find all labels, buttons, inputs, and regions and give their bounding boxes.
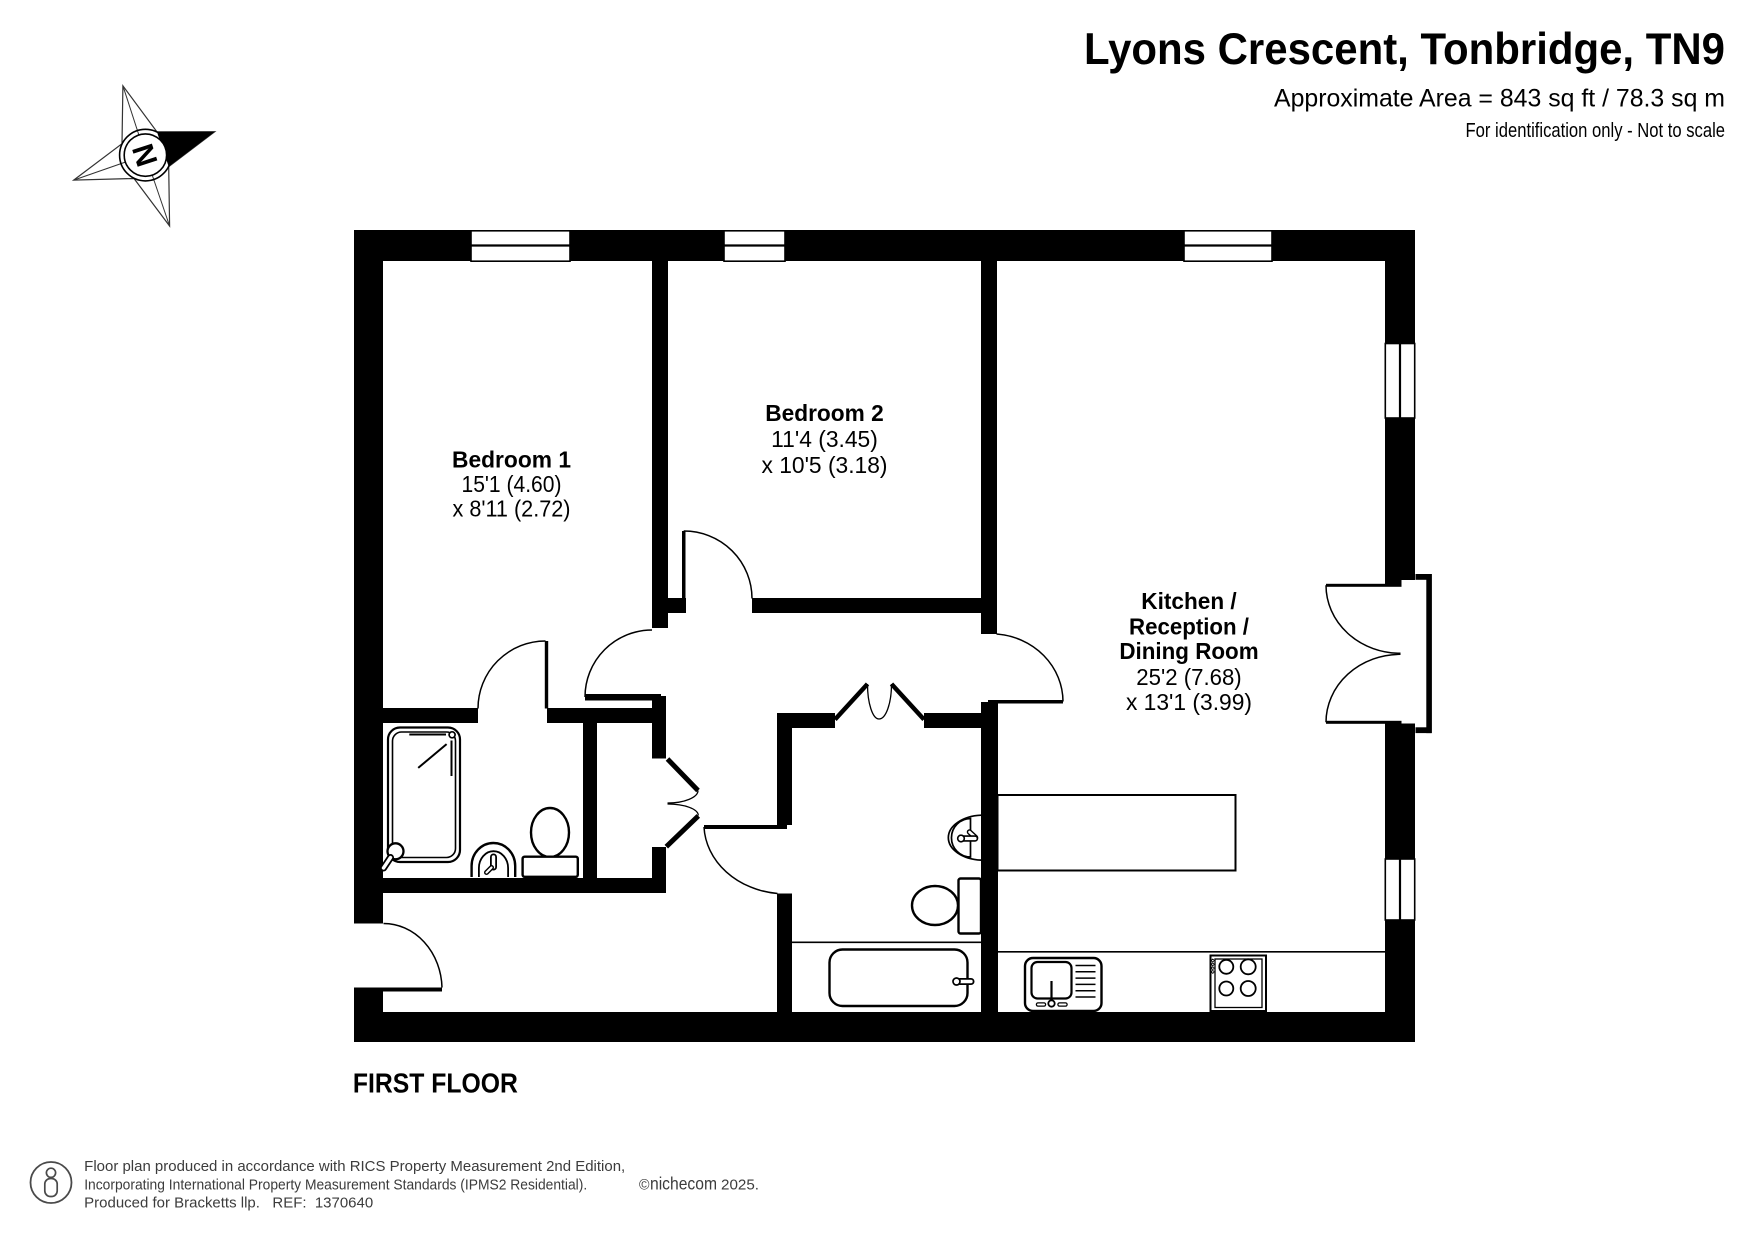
svg-text:Lyons Crescent, Tonbridge, TN9: Lyons Crescent, Tonbridge, TN9	[1084, 25, 1725, 74]
svg-text:11'4 (3.45): 11'4 (3.45)	[771, 426, 878, 452]
svg-text:FIRST FLOOR: FIRST FLOOR	[353, 1068, 518, 1099]
svg-text:Approximate Area = 843 sq ft /: Approximate Area = 843 sq ft / 78.3 sq m	[1274, 86, 1725, 113]
svg-text:x 13'1 (3.99): x 13'1 (3.99)	[1126, 689, 1252, 715]
svg-text:Reception /: Reception /	[1129, 614, 1249, 640]
svg-text:nichecom: nichecom	[650, 1173, 717, 1193]
svg-text:x 8'11 (2.72): x 8'11 (2.72)	[453, 496, 571, 522]
svg-text:x 10'5 (3.18): x 10'5 (3.18)	[762, 452, 888, 478]
svg-text:15'1 (4.60): 15'1 (4.60)	[462, 471, 562, 497]
svg-text:For identification only - Not: For identification only - Not to scale	[1466, 119, 1726, 142]
svg-text:Bedroom 2: Bedroom 2	[765, 400, 884, 426]
svg-text:Incorporating International Pr: Incorporating International Property Mea…	[84, 1177, 587, 1193]
svg-text:Produced for Bracketts llp.: Produced for Bracketts llp. REF: 1370640	[84, 1196, 373, 1212]
svg-text:25'2 (7.68): 25'2 (7.68)	[1136, 664, 1241, 690]
svg-text:Floor plan produced in accorda: Floor plan produced in accordance with R…	[84, 1159, 625, 1175]
svg-text:©: ©	[639, 1177, 650, 1193]
svg-text:Dining Room: Dining Room	[1119, 638, 1258, 664]
svg-text:Kitchen /: Kitchen /	[1141, 588, 1237, 614]
svg-text:2025.: 2025.	[721, 1177, 759, 1193]
svg-text:Bedroom 1: Bedroom 1	[452, 447, 571, 473]
